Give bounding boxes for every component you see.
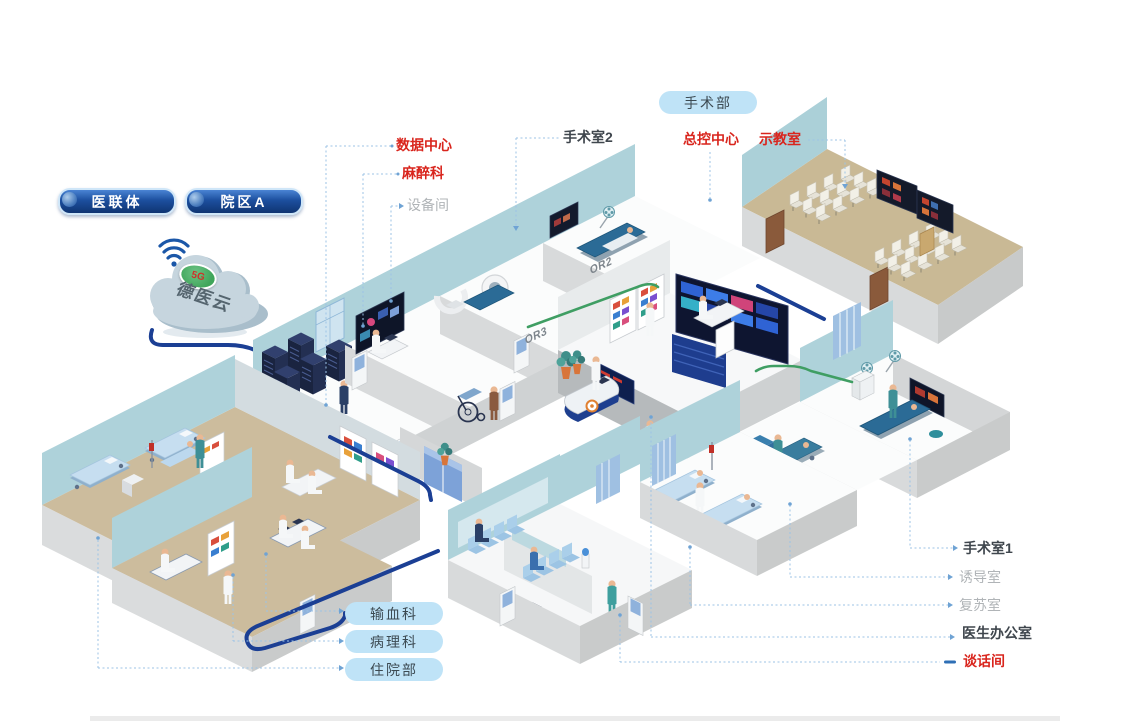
campus-a-pill[interactable]: 院区A <box>185 188 303 215</box>
pill-cap-decoration <box>189 192 204 207</box>
water-dispenser <box>582 548 589 568</box>
master-control-label: 总控中心 <box>683 131 739 147</box>
inpatient-label: 住院部 <box>370 660 418 680</box>
talk-room-label: 谈话间 <box>963 653 1005 669</box>
medical-alliance-pill[interactable]: 医联体 <box>58 188 176 215</box>
blood-transfusion-label: 输血科 <box>370 604 418 624</box>
pill-cap-decoration <box>62 192 77 207</box>
stool <box>929 430 943 438</box>
medical-alliance-label: 医联体 <box>92 192 143 212</box>
bottom-edge-strip <box>90 716 1060 721</box>
talk-room-dash <box>944 661 956 664</box>
inpatient-pill[interactable]: 住院部 <box>345 658 443 681</box>
hospital-cloud-diagram: 医联体 院区A 5G 德医云 手术部 数据中心 麻醉科 设备间 手术室2 总控中… <box>0 0 1129 721</box>
pathology-pill[interactable]: 病理科 <box>345 630 443 653</box>
demo-classroom-label: 示教室 <box>759 131 801 147</box>
doctor-office-label: 医生办公室 <box>962 625 1032 641</box>
induction-room-label: 诱导室 <box>959 569 1001 585</box>
campus-a-label: 院区A <box>220 192 267 212</box>
operating-room-2-label: 手术室2 <box>563 129 613 145</box>
surgery-department-label: 手术部 <box>684 93 732 113</box>
recovery-room-label: 复苏室 <box>959 597 1001 613</box>
equipment-room-label: 设备间 <box>407 197 449 213</box>
blood-transfusion-pill[interactable]: 输血科 <box>345 602 443 625</box>
operating-room-1-label: 手术室1 <box>963 540 1013 556</box>
pathology-label: 病理科 <box>370 632 418 652</box>
surgery-department-pill[interactable]: 手术部 <box>659 91 757 114</box>
anesthesia-label: 麻醉科 <box>402 165 444 181</box>
data-center-label: 数据中心 <box>396 137 452 153</box>
